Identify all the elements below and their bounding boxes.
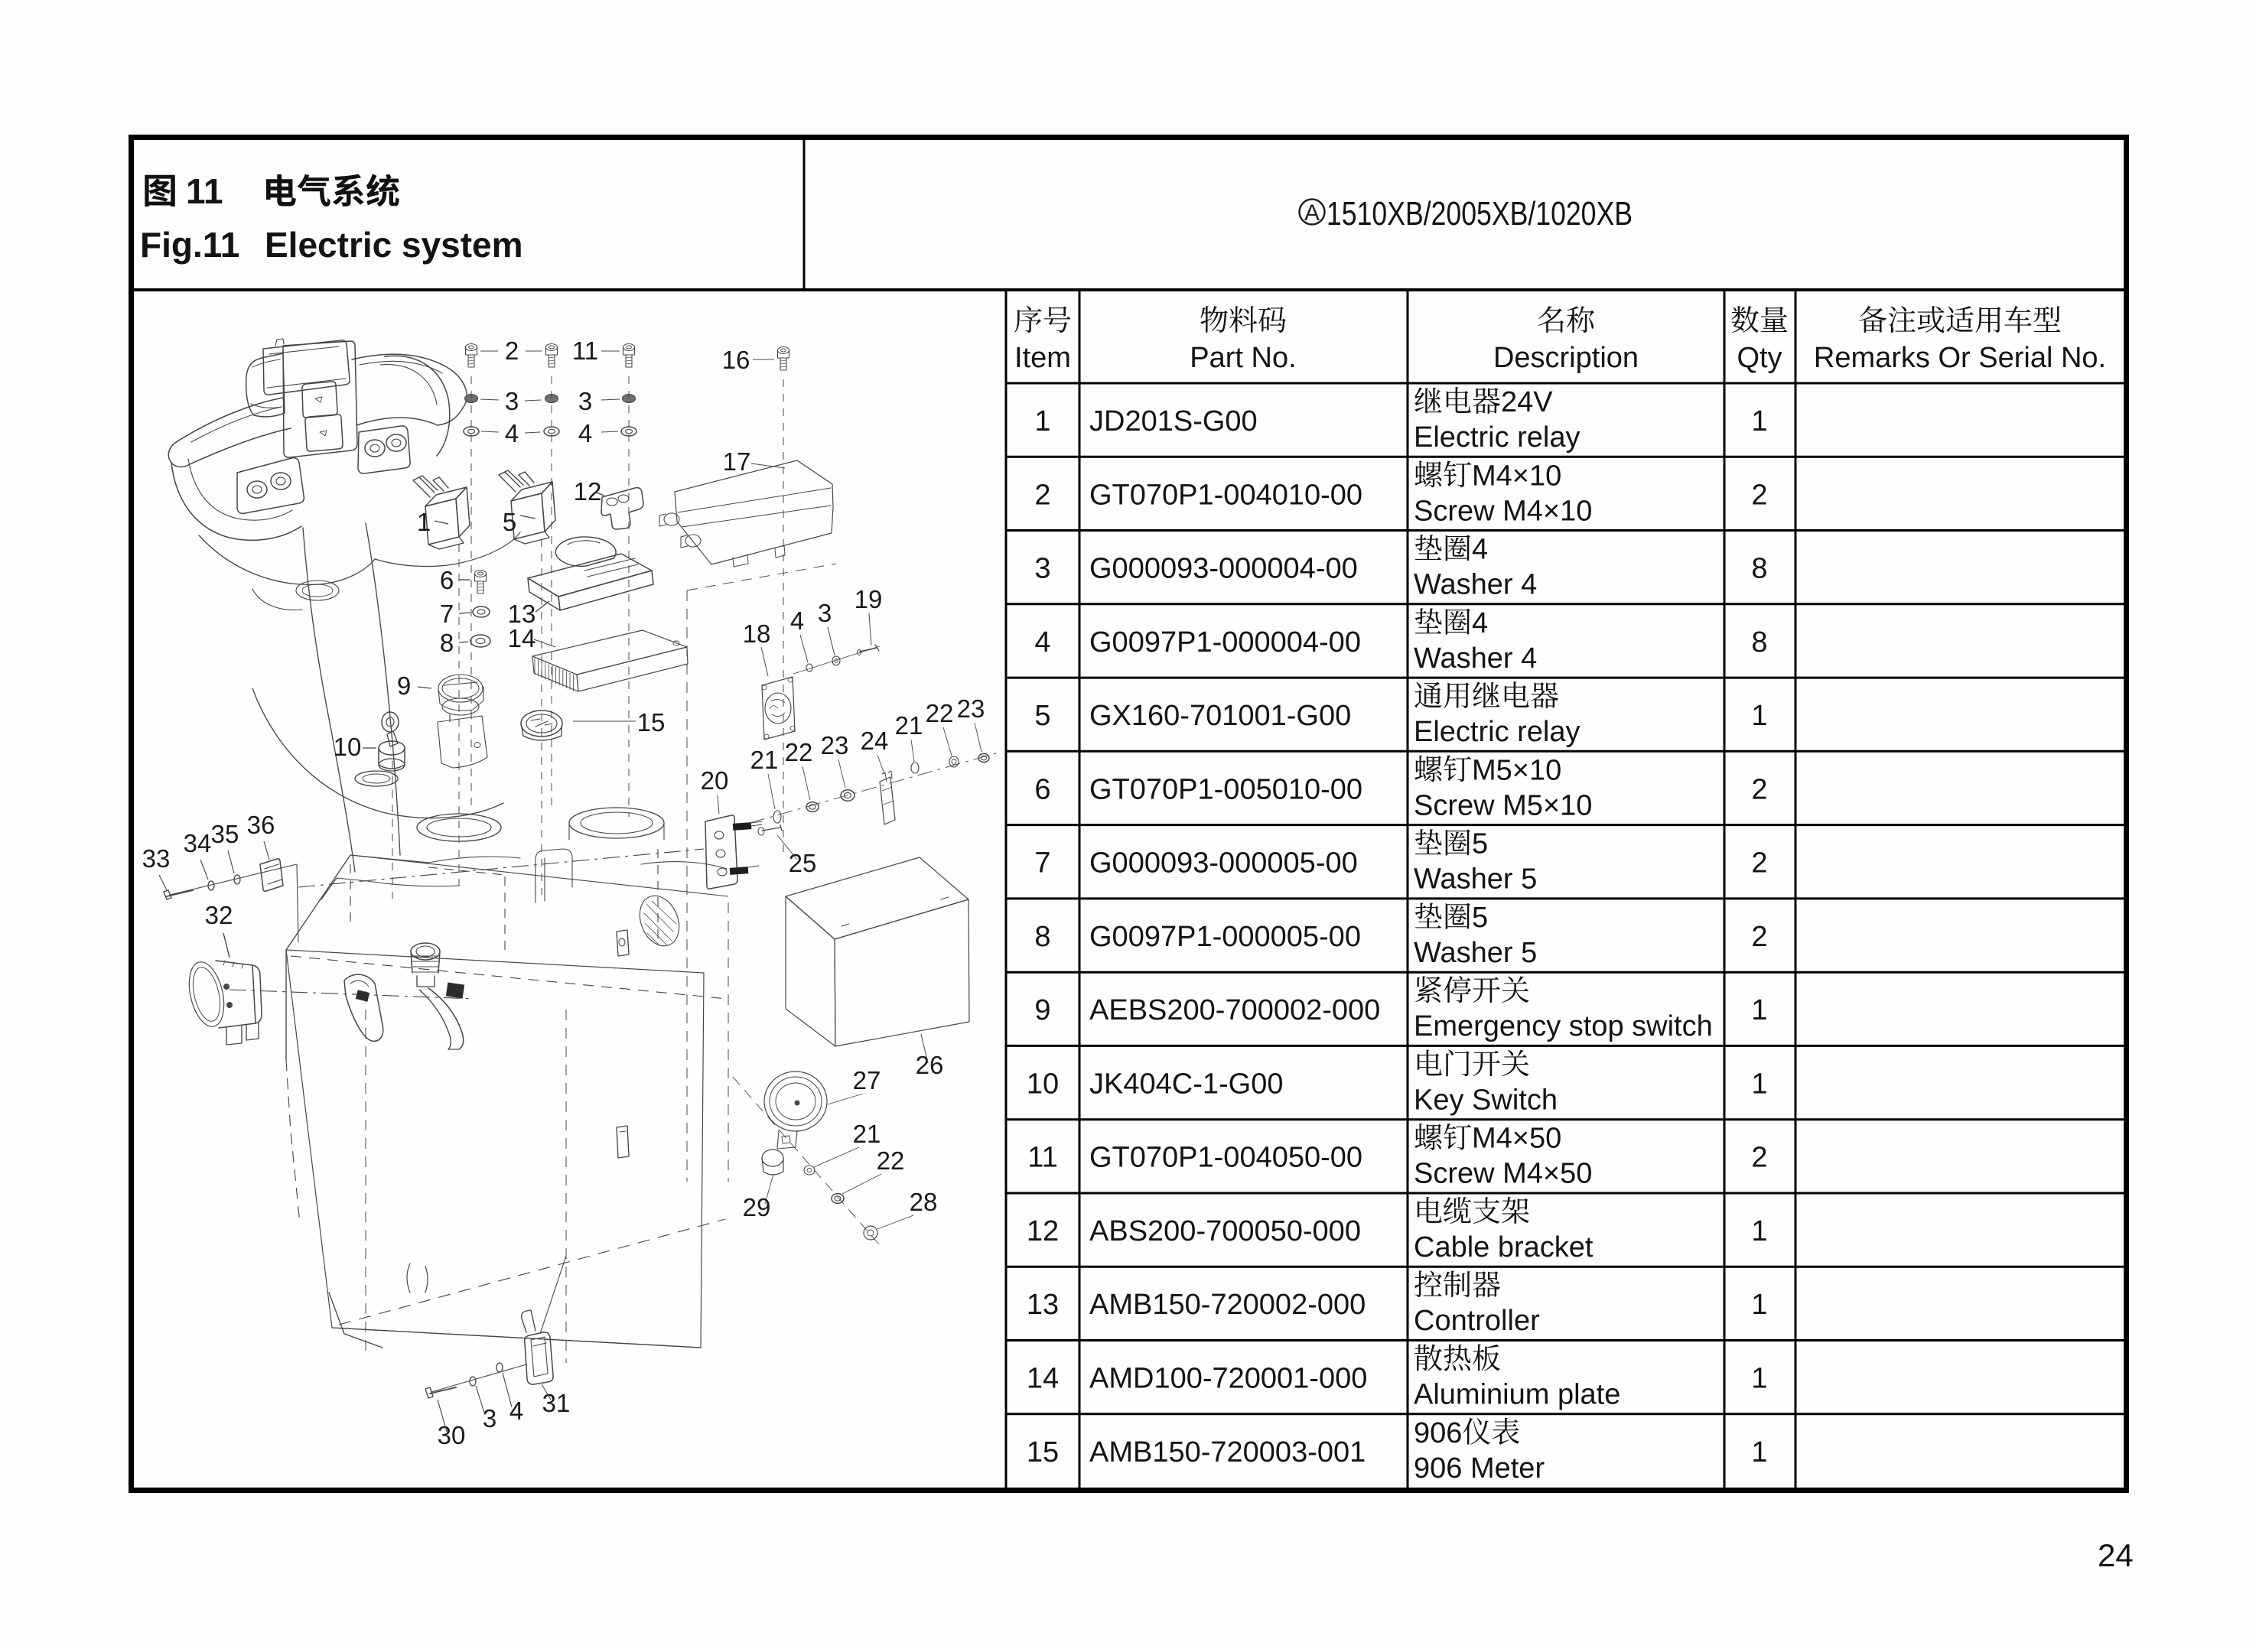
svg-text:19: 19 <box>855 585 883 613</box>
svg-text:1: 1 <box>1751 700 1767 732</box>
svg-text:34: 34 <box>184 829 212 857</box>
svg-text:JK404C-1-G00: JK404C-1-G00 <box>1089 1068 1283 1100</box>
svg-text:2: 2 <box>1751 1142 1767 1174</box>
svg-text:11: 11 <box>1027 1142 1057 1174</box>
svg-text:7: 7 <box>440 600 454 628</box>
svg-text:24: 24 <box>2098 1537 2134 1573</box>
svg-text:8: 8 <box>440 629 454 657</box>
svg-text:G0097P1-000004-00: G0097P1-000004-00 <box>1089 626 1361 659</box>
svg-text:Washer 5: Washer 5 <box>1414 863 1537 896</box>
svg-text:1510XB/2005XB/1020XB: 1510XB/2005XB/1020XB <box>1327 195 1633 233</box>
svg-text:9: 9 <box>397 672 411 700</box>
svg-text:29: 29 <box>743 1193 771 1221</box>
svg-text:21: 21 <box>895 711 923 740</box>
svg-text:36: 36 <box>247 811 275 839</box>
svg-text:Remarks Or Serial No.: Remarks Or Serial No. <box>1814 342 2106 374</box>
svg-text:Screw M5×10: Screw M5×10 <box>1414 789 1592 821</box>
svg-text:Aluminium plate: Aluminium plate <box>1414 1379 1620 1411</box>
svg-text:5: 5 <box>1034 700 1050 732</box>
svg-text:1: 1 <box>1034 405 1050 437</box>
svg-text:2: 2 <box>1034 479 1050 511</box>
svg-text:1: 1 <box>1751 1289 1767 1321</box>
svg-text:6: 6 <box>440 566 454 594</box>
svg-text:AMB150-720002-000: AMB150-720002-000 <box>1089 1289 1366 1321</box>
svg-text:22: 22 <box>785 738 813 766</box>
svg-text:906: 906 <box>1414 1417 1462 1449</box>
svg-text:1: 1 <box>1751 405 1767 437</box>
svg-text:6: 6 <box>1034 773 1050 805</box>
svg-text:Description: Description <box>1493 342 1639 374</box>
svg-text:12: 12 <box>574 477 602 506</box>
svg-text:1: 1 <box>1751 1436 1767 1468</box>
svg-text:23: 23 <box>821 731 849 759</box>
svg-text:906 Meter: 906 Meter <box>1414 1452 1545 1485</box>
svg-text:1: 1 <box>1751 1068 1767 1100</box>
svg-text:13: 13 <box>1027 1289 1059 1321</box>
svg-text:JD201S-G00: JD201S-G00 <box>1089 405 1258 437</box>
svg-text:35: 35 <box>211 820 239 848</box>
svg-text:Qty: Qty <box>1737 342 1782 374</box>
svg-text:Washer 4: Washer 4 <box>1414 642 1537 675</box>
svg-text:3: 3 <box>505 387 519 415</box>
svg-text:2: 2 <box>1751 847 1767 880</box>
svg-text:7: 7 <box>1034 847 1050 880</box>
svg-text:17: 17 <box>723 447 751 476</box>
svg-text:3: 3 <box>578 387 592 415</box>
svg-text:AMD100-720001-000: AMD100-720001-000 <box>1089 1363 1367 1395</box>
svg-text:1: 1 <box>1751 1215 1767 1247</box>
svg-text:27: 27 <box>853 1066 881 1094</box>
svg-text:22: 22 <box>877 1146 905 1175</box>
svg-text:4: 4 <box>1472 607 1488 639</box>
svg-text:Washer 5: Washer 5 <box>1414 937 1537 969</box>
svg-text:4: 4 <box>578 419 592 447</box>
svg-text:2: 2 <box>1751 773 1767 805</box>
svg-text:31: 31 <box>542 1389 571 1417</box>
svg-text:A: A <box>1304 200 1320 226</box>
svg-text:12: 12 <box>1027 1215 1059 1247</box>
svg-text:M4×50: M4×50 <box>1472 1123 1561 1155</box>
svg-text:14: 14 <box>1027 1363 1059 1395</box>
svg-text:Cable bracket: Cable bracket <box>1414 1231 1594 1263</box>
svg-text:Part No.: Part No. <box>1190 342 1296 374</box>
svg-text:21: 21 <box>750 746 779 774</box>
svg-text:24V: 24V <box>1501 386 1553 418</box>
svg-text:8: 8 <box>1034 921 1050 953</box>
svg-text:Electric system: Electric system <box>265 225 523 265</box>
svg-text:4: 4 <box>505 419 519 447</box>
svg-text:Screw M4×50: Screw M4×50 <box>1414 1158 1592 1190</box>
svg-text:4: 4 <box>509 1397 523 1425</box>
svg-text:14: 14 <box>508 624 536 652</box>
svg-text:GX160-701001-G00: GX160-701001-G00 <box>1089 700 1351 732</box>
svg-text:Electric relay: Electric relay <box>1414 716 1581 748</box>
svg-text:4: 4 <box>790 606 804 635</box>
svg-text:Controller: Controller <box>1414 1305 1540 1337</box>
svg-text:9: 9 <box>1034 994 1050 1026</box>
svg-text:18: 18 <box>743 619 771 648</box>
svg-text:Screw M4×10: Screw M4×10 <box>1414 495 1592 527</box>
svg-text:8: 8 <box>1751 553 1767 585</box>
svg-text:10: 10 <box>1027 1068 1059 1100</box>
svg-text:G000093-000005-00: G000093-000005-00 <box>1089 847 1358 880</box>
svg-text:2: 2 <box>1751 921 1767 953</box>
svg-text:4: 4 <box>1472 534 1488 566</box>
svg-text:5: 5 <box>1472 902 1488 934</box>
svg-text:AEBS200-700002-000: AEBS200-700002-000 <box>1089 994 1380 1026</box>
svg-text:26: 26 <box>916 1051 944 1079</box>
svg-text:5: 5 <box>1472 828 1488 860</box>
svg-text:8: 8 <box>1751 626 1767 659</box>
svg-text:GT070P1-004010-00: GT070P1-004010-00 <box>1089 479 1362 511</box>
svg-text:5: 5 <box>503 508 516 536</box>
svg-text:G000093-000004-00: G000093-000004-00 <box>1089 553 1358 585</box>
svg-text:21: 21 <box>853 1120 881 1148</box>
svg-text:11: 11 <box>572 337 598 365</box>
svg-text:2: 2 <box>1751 479 1767 511</box>
svg-text:M5×10: M5×10 <box>1472 754 1561 786</box>
svg-text:3: 3 <box>483 1404 496 1432</box>
svg-text:25: 25 <box>789 849 817 877</box>
svg-text:22: 22 <box>926 699 954 727</box>
svg-text:1: 1 <box>417 508 431 536</box>
svg-text:1: 1 <box>1751 994 1767 1026</box>
svg-text:10: 10 <box>334 733 362 761</box>
svg-text:20: 20 <box>701 766 729 795</box>
svg-text:2: 2 <box>505 337 519 365</box>
svg-text:ABS200-700050-000: ABS200-700050-000 <box>1089 1215 1361 1247</box>
svg-text:G0097P1-000005-00: G0097P1-000005-00 <box>1089 921 1361 953</box>
svg-text:33: 33 <box>142 844 171 873</box>
svg-text:28: 28 <box>910 1188 938 1216</box>
svg-text:GT070P1-004050-00: GT070P1-004050-00 <box>1089 1142 1362 1174</box>
svg-text:16: 16 <box>722 346 750 374</box>
svg-text:23: 23 <box>957 694 985 723</box>
svg-text:1: 1 <box>1751 1363 1767 1395</box>
svg-text:Fig.11: Fig.11 <box>140 225 239 265</box>
svg-text:11: 11 <box>186 171 223 211</box>
svg-text:30: 30 <box>438 1421 466 1449</box>
svg-text:4: 4 <box>1034 626 1050 659</box>
svg-text:15: 15 <box>637 708 666 737</box>
svg-text:Item: Item <box>1014 342 1071 374</box>
svg-text:Emergency stop switch: Emergency stop switch <box>1414 1010 1713 1042</box>
svg-text:3: 3 <box>818 599 832 627</box>
svg-text:24: 24 <box>861 727 889 755</box>
svg-text:AMB150-720003-001: AMB150-720003-001 <box>1089 1436 1366 1468</box>
svg-text:15: 15 <box>1027 1436 1059 1468</box>
svg-text:Electric relay: Electric relay <box>1414 421 1581 454</box>
svg-text:Washer 4: Washer 4 <box>1414 569 1537 601</box>
svg-text:32: 32 <box>205 901 233 929</box>
svg-text:GT070P1-005010-00: GT070P1-005010-00 <box>1089 773 1362 805</box>
svg-text:Key Switch: Key Switch <box>1414 1084 1558 1116</box>
svg-text:M4×10: M4×10 <box>1472 460 1561 492</box>
svg-text:3: 3 <box>1034 553 1050 585</box>
